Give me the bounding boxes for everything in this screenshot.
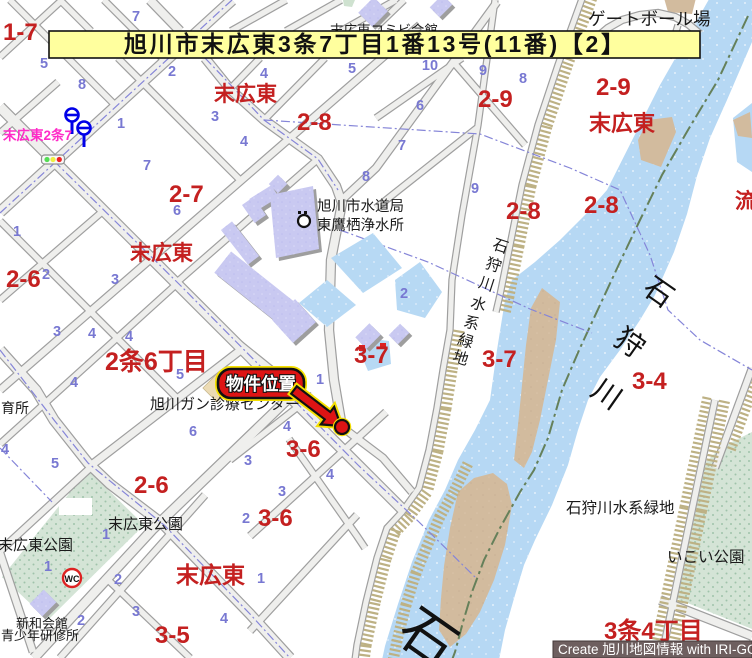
svg-text:3: 3 bbox=[244, 453, 252, 469]
svg-text:2-6: 2-6 bbox=[6, 266, 41, 293]
svg-text:2-8: 2-8 bbox=[506, 198, 541, 225]
svg-text:育所: 育所 bbox=[1, 400, 29, 416]
svg-text:3: 3 bbox=[132, 604, 140, 620]
svg-text:4: 4 bbox=[240, 134, 248, 150]
svg-text:1-7: 1-7 bbox=[3, 19, 38, 46]
svg-text:2: 2 bbox=[114, 572, 122, 588]
svg-text:3: 3 bbox=[111, 272, 119, 288]
svg-text:3: 3 bbox=[53, 324, 61, 340]
svg-text:3-6: 3-6 bbox=[258, 505, 293, 532]
svg-text:2: 2 bbox=[400, 286, 408, 302]
svg-text:末広東2条7: 末広東2条7 bbox=[3, 127, 72, 143]
svg-text:2: 2 bbox=[77, 613, 85, 629]
svg-text:Create 旭川地図情報 with IRI-GO: Create 旭川地図情報 with IRI-GO bbox=[558, 642, 752, 657]
svg-text:6: 6 bbox=[416, 98, 424, 114]
svg-text:4: 4 bbox=[220, 611, 228, 627]
svg-text:6: 6 bbox=[189, 424, 197, 440]
svg-text:1: 1 bbox=[257, 571, 265, 587]
svg-text:2: 2 bbox=[242, 511, 250, 527]
svg-text:旭川市水道局: 旭川市水道局 bbox=[317, 198, 404, 215]
svg-text:末広東: 末広東 bbox=[214, 82, 277, 106]
svg-text:末広東: 末広東 bbox=[130, 241, 193, 265]
svg-text:3: 3 bbox=[211, 109, 219, 125]
svg-text:4: 4 bbox=[1, 442, 9, 458]
svg-text:5: 5 bbox=[40, 56, 48, 72]
svg-text:2-7: 2-7 bbox=[169, 181, 204, 208]
svg-text:4: 4 bbox=[125, 329, 133, 345]
svg-text:流: 流 bbox=[735, 189, 752, 213]
svg-text:WC: WC bbox=[65, 574, 80, 584]
svg-text:8: 8 bbox=[362, 169, 370, 185]
svg-text:2-8: 2-8 bbox=[584, 192, 619, 219]
svg-text:石狩川水系緑地: 石狩川水系緑地 bbox=[566, 499, 675, 517]
svg-text:9: 9 bbox=[479, 63, 487, 79]
svg-text:青少年研修所: 青少年研修所 bbox=[1, 628, 79, 643]
svg-text:2-8: 2-8 bbox=[297, 109, 332, 136]
svg-text:2: 2 bbox=[42, 267, 50, 283]
svg-text:1: 1 bbox=[117, 116, 125, 132]
svg-text:7: 7 bbox=[143, 158, 151, 174]
svg-text:3-5: 3-5 bbox=[155, 622, 190, 649]
svg-text:4: 4 bbox=[88, 326, 96, 342]
svg-text:末広東: 末広東 bbox=[176, 562, 245, 588]
svg-text:物件位置: 物件位置 bbox=[226, 374, 296, 394]
svg-text:2-6: 2-6 bbox=[134, 472, 169, 499]
svg-text:1: 1 bbox=[44, 559, 52, 575]
svg-text:8: 8 bbox=[519, 71, 527, 87]
svg-text:5: 5 bbox=[348, 61, 356, 77]
svg-text:7: 7 bbox=[132, 9, 140, 25]
svg-text:4: 4 bbox=[70, 375, 78, 391]
svg-text:3-4: 3-4 bbox=[632, 368, 667, 395]
svg-text:1: 1 bbox=[316, 372, 324, 388]
svg-text:2条6丁目: 2条6丁目 bbox=[105, 348, 208, 376]
svg-text:3-6: 3-6 bbox=[286, 436, 321, 463]
svg-text:ゲートボール場: ゲートボール場 bbox=[588, 9, 711, 29]
svg-text:末広東公園: 末広東公園 bbox=[0, 537, 73, 554]
svg-text:3-7: 3-7 bbox=[354, 342, 389, 369]
svg-text:いこい公園: いこい公園 bbox=[667, 549, 745, 566]
svg-text:4: 4 bbox=[260, 66, 268, 82]
svg-text:2-9: 2-9 bbox=[596, 74, 631, 101]
svg-text:東鷹栖浄水所: 東鷹栖浄水所 bbox=[317, 217, 404, 234]
svg-text:末広東: 末広東 bbox=[589, 111, 655, 136]
svg-text:4: 4 bbox=[283, 419, 291, 435]
svg-text:2: 2 bbox=[168, 64, 176, 80]
svg-text:7: 7 bbox=[398, 138, 406, 154]
svg-text:8: 8 bbox=[78, 77, 86, 93]
svg-text:末広東公園: 末広東公園 bbox=[108, 516, 183, 533]
svg-text:5: 5 bbox=[51, 456, 59, 472]
svg-text:9: 9 bbox=[471, 181, 479, 197]
svg-text:10: 10 bbox=[422, 58, 438, 74]
svg-text:4: 4 bbox=[326, 467, 334, 483]
svg-text:3-7: 3-7 bbox=[482, 346, 517, 373]
svg-text:2-9: 2-9 bbox=[478, 86, 513, 113]
svg-text:3: 3 bbox=[278, 484, 286, 500]
svg-text:1: 1 bbox=[13, 224, 21, 240]
